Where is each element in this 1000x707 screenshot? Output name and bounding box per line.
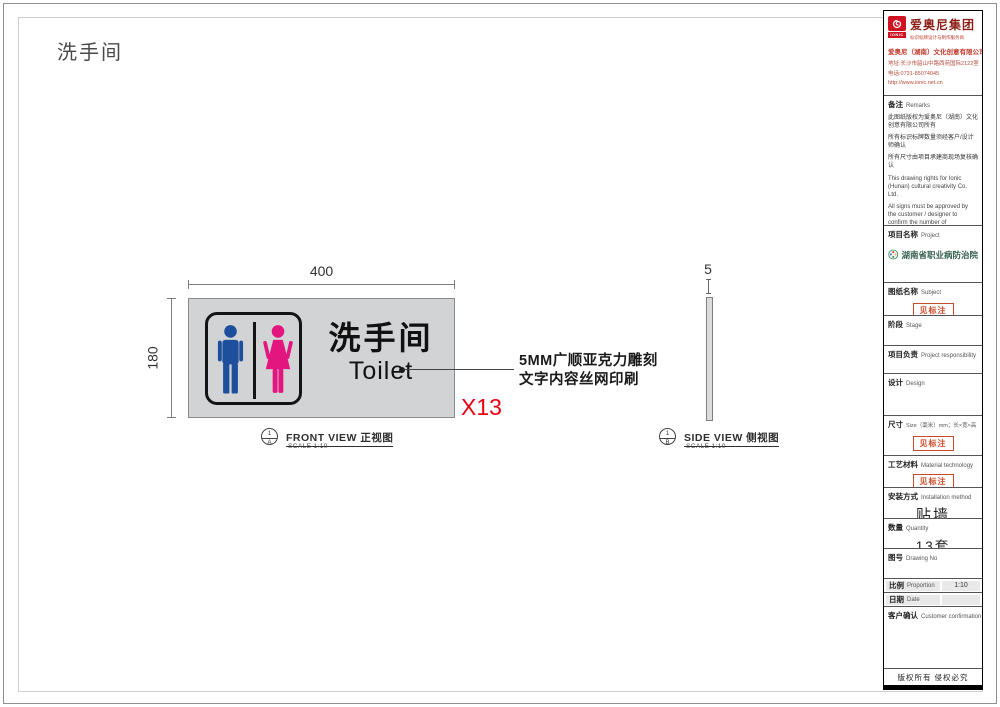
installation-value: 贴墙 [888, 504, 978, 519]
titleblock-design: 设计 Design [884, 374, 982, 416]
sign-text-cn: 洗手间 [311, 321, 451, 356]
view-ref: B [660, 440, 675, 446]
remarks-label-cn: 备注 [888, 99, 903, 110]
company-name: 爱奥尼（湖南）文化创意有限公司 [888, 46, 978, 56]
titleblock-subject: 图纸名称 Subject 见标注 [884, 283, 982, 316]
proportion-value: 1:10 [942, 581, 980, 591]
dim-width-label: 400 [188, 263, 455, 279]
company-phone: 电话:0731-85074045 [888, 69, 978, 77]
quantity-label-en: Quantity [906, 526, 928, 532]
remark-cn-1: 此图纸版权为爱奥尼（湖南）文化创意有限公司所有 [888, 114, 978, 130]
dim-height-line [171, 298, 172, 418]
material-label-en: Material technology [921, 463, 973, 469]
sign-text: 洗手间 Toilet [311, 321, 451, 386]
titleblock-quantity: 数量 Quantity 13套 [884, 519, 982, 549]
date-label-en: Date [907, 597, 920, 603]
company-address: 地址:长沙市韶山中路西苑国际2122室 [888, 59, 978, 67]
title-block: IONIC 爱奥尼集团 标识标牌设计与制作服务商 爱奥尼（湖南）文化创意有限公司… [883, 10, 983, 690]
remark-en-1: This drawing rights for Ionic (Hunan) cu… [888, 175, 978, 199]
size-label-en: Size（毫米）mm；长×宽×高 [906, 421, 976, 429]
remark-en-2: All signs must be approved by the custom… [888, 203, 978, 226]
ionic-logo: IONIC [888, 16, 906, 38]
quantity-value: 13套 [888, 535, 978, 549]
installation-label-cn: 安装方式 [888, 491, 918, 502]
ionic-spiral-icon [888, 16, 906, 31]
side-view-label: 1 B SIDE VIEW 侧视图 SCALE 1:10 [659, 428, 779, 454]
remark-cn-2: 所有标识标牌数量须经客户/设计师确认 [888, 134, 978, 150]
view-reference-symbol: 1 A [261, 428, 278, 445]
ionic-wordmark: IONIC [888, 32, 906, 38]
annotation-line2: 文字内容丝网印刷 [519, 371, 658, 390]
titleblock-copyright: 版权所有 侵权必究 [884, 669, 982, 685]
responsibility-label-cn: 项目负责 [888, 349, 918, 360]
remarks-label-en: Remarks [906, 103, 930, 109]
subject-label-en: Subject [921, 290, 941, 296]
view-number: 1 [660, 431, 675, 439]
size-value-stamp: 见标注 [913, 436, 954, 451]
view-reference-symbol: 1 B [659, 428, 676, 445]
dim-thickness-label: 5 [696, 261, 720, 277]
front-view-label: 1 A FRONT VIEW 正视图 SCALE 1:10 [261, 428, 391, 454]
remark-cn-3: 所有尺寸由项目承建商现场复核确认 [888, 154, 978, 170]
drawing-sheet: 洗手间 400 180 [0, 0, 1000, 707]
customer-label-cn: 客户确认 [888, 610, 918, 621]
stage-label-en: Stage [906, 323, 922, 329]
titleblock-customer-confirmation: 客户确认 Customer confirmation [884, 607, 982, 669]
titleblock-remarks: 备注 Remarks 此图纸版权为爱奥尼（湖南）文化创意有限公司所有 所有标识标… [884, 96, 982, 226]
titleblock-responsibility: 项目负责 Project responsibility [884, 346, 982, 374]
view-number: 1 [262, 431, 277, 439]
dim-tick [188, 280, 189, 289]
titleblock-proportion: 比例 Proportion 1:10 [884, 579, 982, 593]
titleblock-brand: IONIC 爱奥尼集团 标识标牌设计与制作服务商 爱奥尼（湖南）文化创意有限公司… [884, 11, 982, 96]
subject-value-stamp: 见标注 [913, 303, 954, 316]
front-view-scale: SCALE 1:10 [288, 443, 328, 450]
drawing-no-label-en: Drawing No [906, 556, 937, 562]
titleblock-size: 尺寸 Size（毫米）mm；长×宽×高 见标注 [884, 416, 982, 456]
date-value [942, 595, 980, 605]
leader-dot [399, 367, 405, 373]
titleblock-project: 项目名称 Project 湖南省职业病防治院 [884, 226, 982, 283]
titleblock-drawing-no: 图号 Drawing No [884, 549, 982, 579]
dim-thickness-mark [708, 279, 709, 294]
view-ref: A [262, 440, 277, 446]
pictogram-divider [253, 322, 256, 399]
toilet-sign-front-view: 洗手间 Toilet [188, 298, 455, 418]
dim-tick [167, 417, 176, 418]
dim-height-label: 180 [144, 298, 162, 418]
leader-line [404, 369, 514, 370]
material-label-cn: 工艺材料 [888, 459, 918, 470]
toilet-sign-side-view [706, 297, 713, 421]
date-label-cn: 日期 [889, 594, 904, 605]
titleblock-stage: 阶段 Stage [884, 316, 982, 346]
titleblock-date: 日期 Date [884, 593, 982, 607]
dim-width-line [188, 284, 455, 285]
project-name: 湖南省职业病防治院 [901, 249, 978, 261]
size-label-cn: 尺寸 [888, 419, 903, 430]
proportion-label-cn: 比例 [889, 580, 904, 591]
brand-name: 爱奥尼集团 [910, 16, 975, 33]
male-icon [215, 324, 246, 398]
dim-tick [167, 298, 176, 299]
side-view-scale: SCALE 1:10 [686, 443, 726, 450]
annotation-line1: 5MM广顺亚克力雕刻 [519, 352, 658, 371]
sign-text-en: Toilet [311, 357, 451, 386]
responsibility-label-en: Project responsibility [921, 353, 976, 359]
material-annotation: 5MM广顺亚克力雕刻 文字内容丝网印刷 [519, 352, 658, 389]
dim-height-text: 180 [145, 346, 161, 369]
brand-tagline: 标识标牌设计与制作服务商 [910, 35, 975, 41]
quantity-mark: X13 [461, 394, 502, 421]
dim-tick [454, 280, 455, 289]
hospital-logo-icon [888, 248, 898, 261]
project-label-en: Project [921, 233, 940, 239]
titleblock-installation: 安装方式 Installation method 贴墙 [884, 488, 982, 519]
female-icon [261, 324, 295, 398]
drawing-no-label-cn: 图号 [888, 552, 903, 563]
page-title: 洗手间 [57, 36, 123, 65]
titleblock-material: 工艺材料 Material technology 见标注 [884, 456, 982, 488]
company-website: http://www.ionic.net.cn [888, 80, 978, 86]
design-label-cn: 设计 [888, 377, 903, 388]
design-label-en: Design [906, 381, 925, 387]
drawing-frame [18, 17, 983, 692]
proportion-label-en: Proportion [907, 583, 935, 589]
restroom-pictogram-box [205, 312, 302, 405]
customer-label-en: Customer confirmation [921, 614, 981, 620]
subject-label-cn: 图纸名称 [888, 286, 918, 297]
project-label-cn: 项目名称 [888, 229, 918, 240]
material-value-stamp: 见标注 [913, 474, 954, 488]
installation-label-en: Installation method [921, 495, 971, 501]
stage-label-cn: 阶段 [888, 319, 903, 330]
quantity-label-cn: 数量 [888, 522, 903, 533]
